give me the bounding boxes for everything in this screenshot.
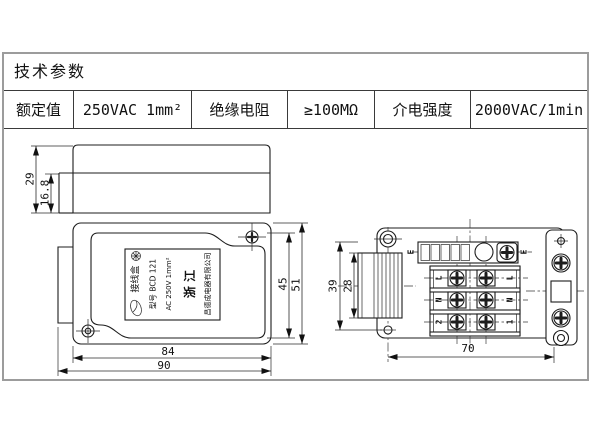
terminal-screw-icon: [479, 293, 493, 307]
terminal-row-right-1: N: [506, 297, 515, 302]
terminal-row-right-2: 1: [506, 319, 515, 324]
terminal-screw-icon: [479, 271, 493, 285]
label-region: 浙 江: [182, 270, 197, 298]
label-model: 型号 BCD 121: [149, 259, 158, 309]
right-fastener-column: [546, 230, 577, 346]
dim-plan-total-width: 90: [157, 359, 170, 372]
terminal-screw-icon: [450, 293, 464, 307]
terminal-row-left-1: N: [435, 297, 444, 302]
dim-side-lower-height: 16.8: [39, 180, 52, 207]
drawing-sheet: 技术参数 额定值 250VAC 1mm² 绝缘电阻 ≥100MΩ 介电强度 20…: [0, 0, 600, 424]
technical-drawing: 29 16.8 接线盒 型号 BCD 121 AC 250V 1mm² 浙 江: [0, 0, 600, 424]
terminal-screw-icon: [450, 315, 464, 329]
cable-connector: [358, 253, 402, 318]
side-view-body: [73, 145, 270, 213]
terminal-view-drawing: E E: [327, 219, 585, 363]
terminal-row-right-0: L: [506, 275, 515, 280]
dim-side-total-height: 29: [24, 172, 37, 185]
dim-plan-body-width: 84: [161, 345, 175, 358]
terminal-row-left-2: 2: [435, 319, 444, 324]
plan-view-drawing: 接线盒 型号 BCD 121 AC 250V 1mm² 浙 江 昌德成电器有限公…: [58, 223, 308, 376]
dim-terminal-span: 70: [461, 342, 474, 355]
terminal-screw-icon: [450, 271, 464, 285]
terminal-label-earth-left: E: [407, 249, 416, 254]
side-view-drawing: 29 16.8: [24, 145, 271, 213]
earth-terminal-strip: [418, 242, 518, 263]
terminal-label-earth-right: E: [520, 249, 529, 254]
terminal-row-left-0: L: [435, 275, 444, 280]
fastener-screw-icon: [554, 311, 568, 325]
fastener-screw-icon: [554, 256, 568, 270]
label-rating: AC 250V 1mm²: [165, 257, 173, 310]
certification-mark-icon: [132, 252, 141, 261]
terminal-screw-icon: [479, 315, 493, 329]
dim-plan-total-height: 51: [290, 278, 303, 291]
earth-screw-icon: [500, 246, 514, 260]
label-product-name: 接线盒: [129, 265, 141, 292]
label-company: 昌德成电器有限公司: [203, 253, 212, 316]
dim-plan-inner-height: 45: [277, 277, 290, 290]
dim-terminal-connector-outer: 39: [327, 279, 340, 292]
dim-terminal-connector-inner: 28: [342, 279, 355, 292]
